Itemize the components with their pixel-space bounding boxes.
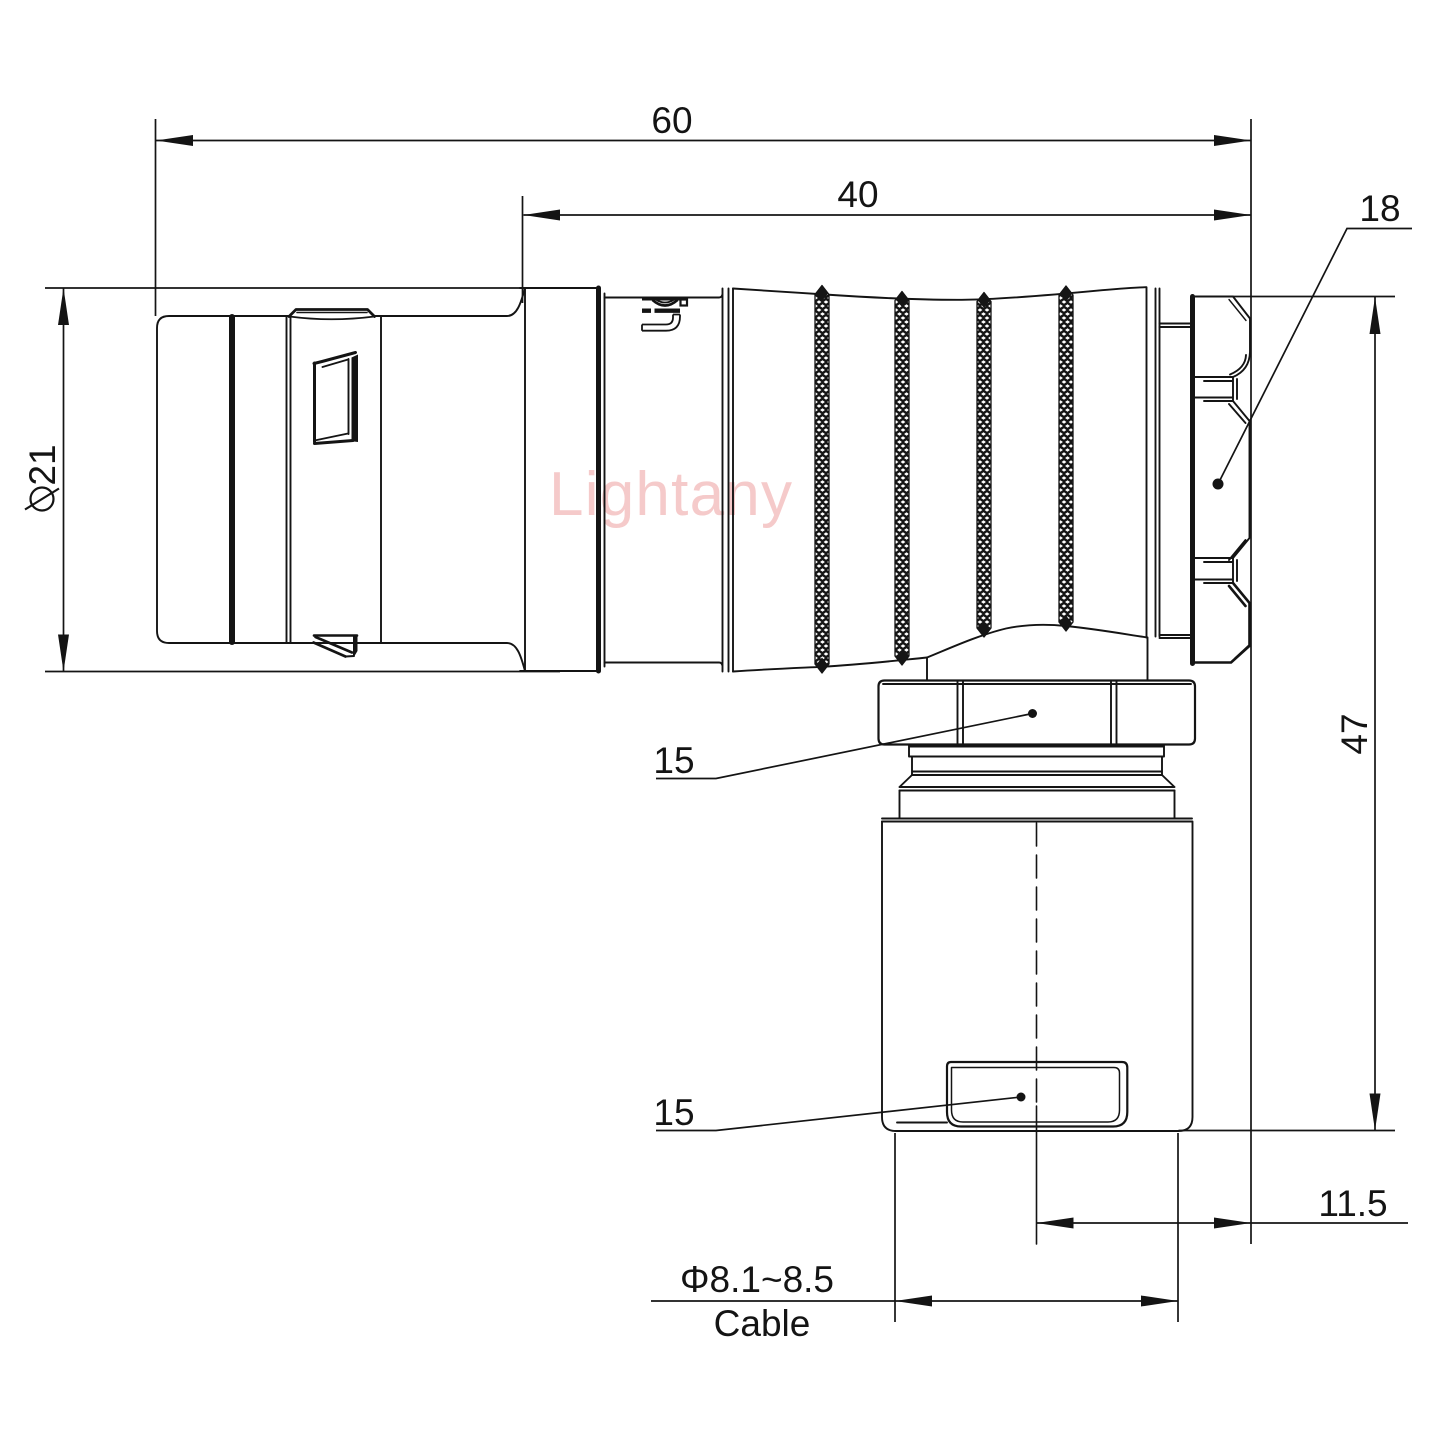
svg-text:11.5: 11.5 xyxy=(1318,1183,1387,1224)
svg-text:Φ8.1~8.5: Φ8.1~8.5 xyxy=(680,1259,834,1300)
svg-text:47: 47 xyxy=(1334,713,1375,754)
svg-text:15: 15 xyxy=(653,740,694,781)
svg-text:18: 18 xyxy=(1359,188,1400,229)
svg-text:60: 60 xyxy=(651,100,692,141)
svg-text:Cable: Cable xyxy=(714,1303,811,1344)
svg-text:21: 21 xyxy=(22,444,63,485)
svg-text:15: 15 xyxy=(653,1092,694,1133)
svg-text:40: 40 xyxy=(837,174,878,215)
svg-text:Lightany: Lightany xyxy=(549,460,792,529)
